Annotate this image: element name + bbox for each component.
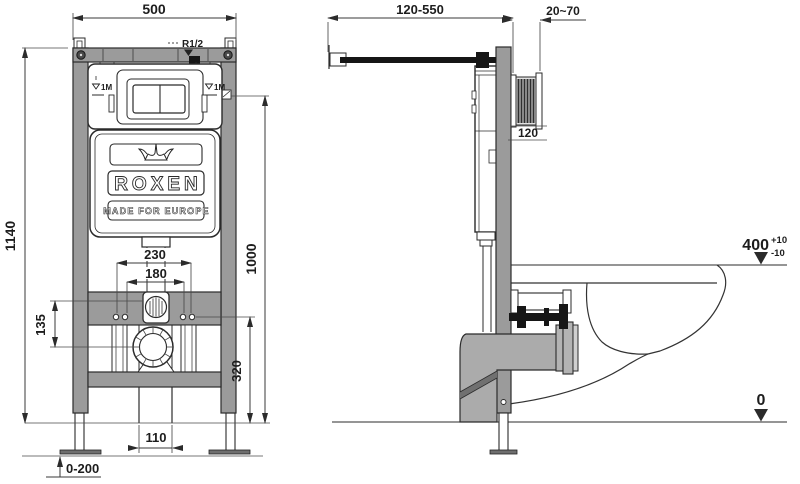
lower-crossbar — [88, 372, 221, 387]
fixing-studs — [509, 290, 571, 329]
flush-buttons — [133, 85, 185, 113]
stud-hole — [189, 314, 194, 319]
arm-clamp — [476, 52, 489, 68]
brand-tagline: MADE FOR EUROPE — [103, 206, 210, 216]
left-post — [73, 48, 88, 413]
dim-inner-studs: 180 — [145, 266, 167, 281]
outlet-flange-cap — [573, 325, 578, 371]
side-foot-plate — [490, 450, 517, 454]
cistern-side-body — [475, 66, 497, 232]
bowl-inner-profile — [587, 283, 648, 354]
dim-drain-width: 110 — [146, 430, 167, 445]
right-rail-bolt-dot — [227, 54, 229, 56]
dim-legs-range: 0-200 — [66, 461, 99, 476]
stud-hole — [180, 314, 185, 319]
brand-name: ROXEN — [114, 174, 202, 195]
stud-end-nut — [559, 304, 568, 329]
inlet-thread-label: R1/2 — [182, 39, 204, 50]
outlet-flange — [563, 322, 573, 374]
dim-flush-drain-offset: 135 — [33, 314, 48, 336]
stud-hole — [113, 314, 118, 319]
level-mark-label: 1M — [101, 83, 112, 92]
datum-triangle-icon — [754, 252, 768, 265]
drain-elbow-assembly — [460, 322, 578, 422]
cistern-step-2 — [480, 240, 492, 246]
dim-floor-zero: 0 — [757, 392, 766, 409]
installation-frame-drawing: R1/2 1M 1M — [0, 0, 800, 484]
right-foot-plate — [209, 450, 250, 454]
right-post — [221, 48, 236, 413]
cistern-clip — [472, 105, 476, 113]
sleeve-cap-left — [511, 290, 518, 313]
dim-bowl-level-tol-minus: -10 — [771, 248, 785, 259]
front-lower-assembly — [88, 292, 221, 423]
left-stud-channel — [112, 325, 127, 372]
right-hanger-hook — [225, 38, 236, 49]
flush-plate-assembly: 1M 1M — [88, 62, 225, 129]
right-plate-clip — [202, 95, 207, 112]
dim-outer-studs: 230 — [144, 247, 166, 262]
right-stud-channel — [181, 325, 196, 372]
cistern-side — [472, 66, 497, 332]
dim-depth-range: 120-550 — [396, 2, 444, 17]
flush-opening-cover — [511, 73, 542, 129]
dim-bowl-level: 400 — [742, 237, 769, 254]
stud-nut — [517, 306, 526, 328]
level-mark-label: 1M — [214, 83, 225, 92]
dim-bowl-level-tol-plus: +10 — [771, 235, 787, 246]
technical-drawing-page: R1/2 1M 1M — [0, 0, 800, 484]
cistern-step-1 — [477, 232, 495, 240]
dim-studs-height: 320 — [229, 360, 244, 382]
left-hanger-hook — [74, 38, 85, 49]
drain-socket-inner — [140, 334, 167, 361]
dim-wall-range: 20~70 — [546, 4, 580, 18]
front-view: R1/2 1M 1M — [2, 1, 270, 477]
top-rail — [73, 48, 236, 62]
side-leg — [499, 413, 508, 451]
post-hole — [501, 400, 506, 405]
cistern-outlet-stub — [142, 237, 170, 247]
right-leg — [226, 413, 235, 451]
dim-opening-height: 120 — [518, 126, 538, 140]
floor-triangle-icon — [754, 409, 768, 422]
wall-support-arm — [329, 45, 496, 69]
dim-height: 1140 — [2, 221, 18, 252]
outlet-flange-ring — [556, 325, 563, 371]
stud-hole — [122, 314, 127, 319]
side-view: 120-550 20~70 120 400 +10 -10 0 — [328, 2, 787, 454]
arm-bar — [340, 57, 496, 63]
left-plate-clip — [109, 95, 114, 112]
left-leg — [75, 413, 84, 451]
left-foot-plate — [60, 450, 101, 454]
dim-width: 500 — [142, 1, 166, 17]
left-rail-bolt-dot — [80, 54, 82, 56]
dim-level-height: 1000 — [243, 243, 259, 274]
cover-cap-left — [511, 75, 516, 127]
cover-cap-right — [536, 73, 542, 129]
cistern-clip — [472, 91, 476, 99]
stud-washer — [544, 308, 549, 326]
valve-box — [489, 150, 496, 163]
